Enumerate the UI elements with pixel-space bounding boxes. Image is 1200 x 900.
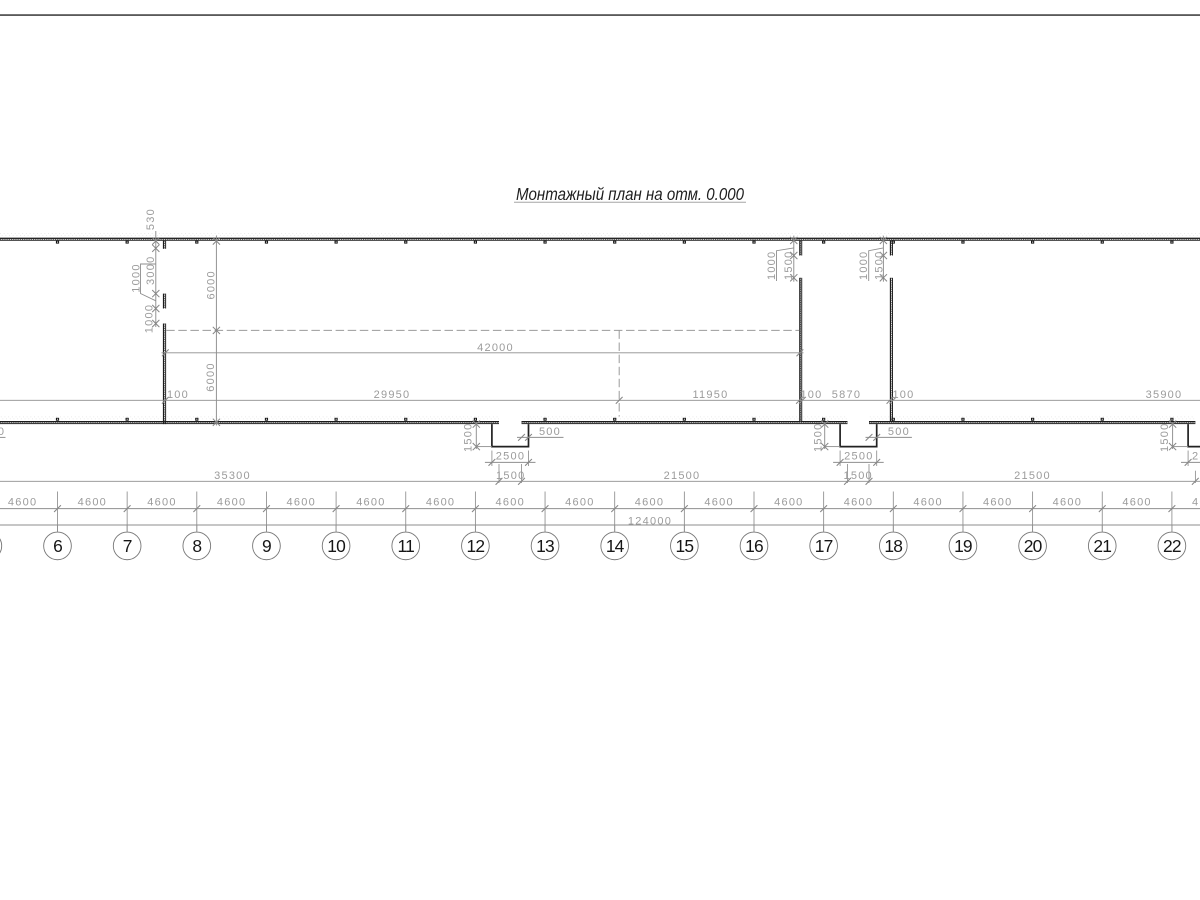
svg-text:17: 17 <box>815 536 833 556</box>
svg-text:4600: 4600 <box>287 496 316 508</box>
svg-text:16: 16 <box>745 536 763 556</box>
svg-text:1000: 1000 <box>130 263 142 292</box>
svg-text:2500: 2500 <box>496 451 525 463</box>
svg-text:4600: 4600 <box>774 496 803 508</box>
svg-text:530: 530 <box>145 208 157 230</box>
svg-text:4600: 4600 <box>1192 496 1200 508</box>
svg-text:100: 100 <box>892 389 914 401</box>
svg-text:21500: 21500 <box>664 470 701 482</box>
svg-text:6: 6 <box>53 536 62 556</box>
svg-text:21500: 21500 <box>1014 470 1051 482</box>
svg-text:124000: 124000 <box>628 515 672 527</box>
svg-text:22: 22 <box>1163 536 1181 556</box>
svg-text:21: 21 <box>1093 536 1111 556</box>
svg-text:4600: 4600 <box>356 496 385 508</box>
svg-text:4600: 4600 <box>147 496 176 508</box>
svg-text:4600: 4600 <box>983 496 1012 508</box>
svg-text:42000: 42000 <box>477 342 514 354</box>
svg-text:15: 15 <box>675 536 693 556</box>
svg-text:500: 500 <box>888 426 910 438</box>
svg-text:20: 20 <box>1024 536 1042 556</box>
svg-text:4600: 4600 <box>1122 496 1151 508</box>
svg-text:4600: 4600 <box>426 496 455 508</box>
svg-text:18: 18 <box>884 536 902 556</box>
svg-text:4600: 4600 <box>8 496 37 508</box>
svg-text:1500: 1500 <box>813 422 825 451</box>
svg-text:4600: 4600 <box>217 496 246 508</box>
svg-text:500: 500 <box>0 426 5 438</box>
svg-text:1000: 1000 <box>143 304 155 333</box>
svg-text:10: 10 <box>327 536 345 556</box>
svg-text:4600: 4600 <box>495 496 524 508</box>
svg-text:2500: 2500 <box>844 451 873 463</box>
svg-text:4600: 4600 <box>913 496 942 508</box>
svg-text:11950: 11950 <box>692 389 728 401</box>
svg-text:1500: 1500 <box>496 470 525 482</box>
svg-text:35900: 35900 <box>1146 389 1183 401</box>
svg-text:12: 12 <box>467 536 485 556</box>
svg-text:13: 13 <box>536 536 554 556</box>
svg-text:35300: 35300 <box>214 470 251 482</box>
svg-text:Монтажный план на отм. 0.000: Монтажный план на отм. 0.000 <box>516 184 744 204</box>
svg-text:9: 9 <box>262 536 271 556</box>
svg-text:8: 8 <box>192 536 201 556</box>
svg-text:19: 19 <box>954 536 972 556</box>
svg-text:1000: 1000 <box>858 251 870 280</box>
svg-text:5870: 5870 <box>832 389 861 401</box>
svg-text:4600: 4600 <box>635 496 664 508</box>
svg-text:29950: 29950 <box>374 389 411 401</box>
svg-text:4600: 4600 <box>78 496 107 508</box>
svg-text:3000: 3000 <box>145 255 157 284</box>
svg-text:4600: 4600 <box>704 496 733 508</box>
svg-text:4600: 4600 <box>1053 496 1082 508</box>
svg-text:100: 100 <box>800 389 822 401</box>
svg-text:1500: 1500 <box>463 422 475 451</box>
svg-text:4600: 4600 <box>565 496 594 508</box>
svg-text:500: 500 <box>539 426 561 438</box>
svg-text:11: 11 <box>398 536 415 556</box>
svg-text:14: 14 <box>606 536 625 556</box>
svg-text:4600: 4600 <box>844 496 873 508</box>
svg-text:100: 100 <box>167 389 189 401</box>
svg-text:1500: 1500 <box>1159 422 1171 451</box>
svg-text:6000: 6000 <box>205 362 217 391</box>
svg-text:6000: 6000 <box>205 270 217 299</box>
svg-text:7: 7 <box>123 536 132 556</box>
svg-text:1500: 1500 <box>873 250 885 279</box>
svg-text:1000: 1000 <box>766 251 778 280</box>
svg-text:1500: 1500 <box>783 250 795 279</box>
svg-text:1500: 1500 <box>843 470 872 482</box>
svg-text:2500: 2500 <box>1192 451 1200 463</box>
